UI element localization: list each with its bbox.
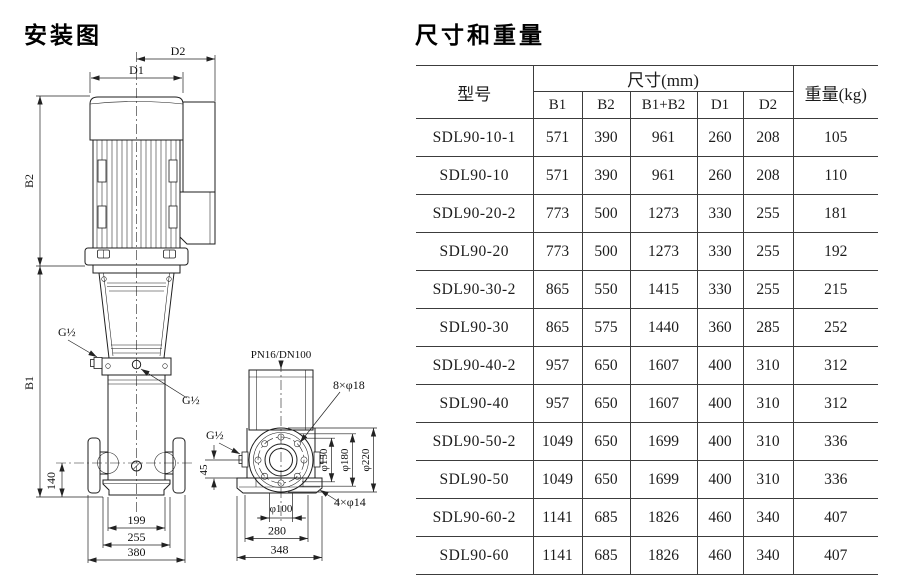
value-cell: 310 (743, 385, 793, 423)
label-bolt-holes: 8×φ18 (333, 378, 365, 392)
value-cell: 336 (793, 423, 878, 461)
value-cell: 330 (697, 195, 743, 233)
value-cell: 1699 (630, 423, 697, 461)
value-cell: 1049 (533, 461, 582, 499)
value-cell: 208 (743, 157, 793, 195)
label-348: 348 (271, 543, 289, 557)
model-cell: SDL90-20-2 (416, 195, 533, 233)
value-cell: 340 (743, 499, 793, 537)
value-cell: 650 (582, 347, 630, 385)
value-cell: 255 (743, 233, 793, 271)
label-199: 199 (128, 513, 146, 527)
value-cell: 330 (697, 271, 743, 309)
table-row: SDL90-5010496501699400310336 (416, 461, 878, 499)
table-row: SDL90-60-211416851826460340407 (416, 499, 878, 537)
front-dimensions: B2 B1 140 D1 D2 199 255 380 G½ G½ (22, 44, 215, 563)
label-d1: D1 (129, 63, 144, 77)
value-cell: 571 (533, 157, 582, 195)
value-cell: 957 (533, 385, 582, 423)
value-cell: 336 (793, 461, 878, 499)
value-cell: 685 (582, 499, 630, 537)
spec-table-body: SDL90-10-1571390961260208105SDL90-105713… (416, 119, 878, 575)
value-cell: 252 (793, 309, 878, 347)
value-cell: 650 (582, 423, 630, 461)
value-cell: 255 (743, 271, 793, 309)
value-cell: 310 (743, 423, 793, 461)
label-g-half-lower: G½ (182, 393, 200, 407)
table-row: SDL90-308655751440360285252 (416, 309, 878, 347)
value-cell: 181 (793, 195, 878, 233)
value-cell: 961 (630, 119, 697, 157)
table-row: SDL90-6011416851826460340407 (416, 537, 878, 575)
head-bolt-right (163, 364, 168, 369)
value-cell: 208 (743, 119, 793, 157)
value-cell: 400 (697, 347, 743, 385)
side-view: PN16/DN100 8×φ18 G½ 45 φ150 φ180 φ220 4×… (198, 349, 377, 561)
model-cell: SDL90-10-1 (416, 119, 533, 157)
label-d2: D2 (171, 44, 186, 58)
value-cell: 650 (582, 461, 630, 499)
value-cell: 500 (582, 233, 630, 271)
value-cell: 1826 (630, 537, 697, 575)
label-dia150: φ150 (318, 448, 330, 471)
model-cell: SDL90-40-2 (416, 347, 533, 385)
model-cell: SDL90-10 (416, 157, 533, 195)
value-cell: 500 (582, 195, 630, 233)
header-weight: 重量(kg) (793, 66, 878, 119)
value-cell: 110 (793, 157, 878, 195)
value-cell: 215 (793, 271, 878, 309)
dimensions-weight-title: 尺寸和重量 (415, 16, 545, 50)
table-row: SDL90-10-1571390961260208105 (416, 119, 878, 157)
value-cell: 400 (697, 385, 743, 423)
side-dimensions: PN16/DN100 8×φ18 G½ 45 φ150 φ180 φ220 4×… (198, 349, 377, 561)
head-bolt-left (106, 364, 111, 369)
value-cell: 773 (533, 233, 582, 271)
label-dia100: φ100 (270, 503, 293, 515)
model-cell: SDL90-40 (416, 385, 533, 423)
value-cell: 1699 (630, 461, 697, 499)
value-cell: 390 (582, 157, 630, 195)
value-cell: 1415 (630, 271, 697, 309)
label-flange-spec: PN16/DN100 (251, 349, 312, 361)
label-dia180: φ180 (339, 448, 351, 471)
value-cell: 105 (793, 119, 878, 157)
header-d2: D2 (743, 92, 793, 119)
value-cell: 1273 (630, 195, 697, 233)
table-row: SDL90-30-28655501415330255215 (416, 271, 878, 309)
value-cell: 285 (743, 309, 793, 347)
model-cell: SDL90-50-2 (416, 423, 533, 461)
value-cell: 460 (697, 537, 743, 575)
value-cell: 407 (793, 499, 878, 537)
motor-tie-rod-slots (98, 160, 177, 228)
value-cell: 865 (533, 271, 582, 309)
value-cell: 312 (793, 385, 878, 423)
model-cell: SDL90-50 (416, 461, 533, 499)
value-cell: 1273 (630, 233, 697, 271)
motor-conduit (183, 102, 215, 192)
value-cell: 685 (582, 537, 630, 575)
value-cell: 310 (743, 347, 793, 385)
value-cell: 575 (582, 309, 630, 347)
discharge-flange (173, 438, 185, 493)
value-cell: 340 (743, 537, 793, 575)
label-140: 140 (44, 472, 58, 490)
value-cell: 957 (533, 347, 582, 385)
value-cell: 407 (793, 537, 878, 575)
table-row: SDL90-20-27735001273330255181 (416, 195, 878, 233)
label-b1: B1 (22, 376, 36, 390)
model-cell: SDL90-30 (416, 309, 533, 347)
value-cell: 550 (582, 271, 630, 309)
label-g-half-side: G½ (206, 428, 224, 442)
header-d1: D1 (697, 92, 743, 119)
model-cell: SDL90-60 (416, 537, 533, 575)
value-cell: 260 (697, 119, 743, 157)
value-cell: 1440 (630, 309, 697, 347)
table-row: SDL90-50-210496501699400310336 (416, 423, 878, 461)
table-row: SDL90-10571390961260208110 (416, 157, 878, 195)
header-model: 型号 (416, 66, 533, 119)
label-255: 255 (128, 530, 146, 544)
value-cell: 400 (697, 423, 743, 461)
value-cell: 360 (697, 309, 743, 347)
table-row: SDL90-409576501607400310312 (416, 385, 878, 423)
label-g-half-upper: G½ (58, 325, 76, 339)
value-cell: 1049 (533, 423, 582, 461)
header-b1b2: B1+B2 (630, 92, 697, 119)
label-dia220: φ220 (360, 448, 372, 471)
value-cell: 390 (582, 119, 630, 157)
header-b1: B1 (533, 92, 582, 119)
value-cell: 330 (697, 233, 743, 271)
table-row: SDL90-207735001273330255192 (416, 233, 878, 271)
lantern-housing (99, 273, 174, 358)
model-cell: SDL90-20 (416, 233, 533, 271)
value-cell: 310 (743, 461, 793, 499)
value-cell: 460 (697, 499, 743, 537)
fill-plug (91, 358, 103, 369)
value-cell: 773 (533, 195, 582, 233)
model-cell: SDL90-60-2 (416, 499, 533, 537)
value-cell: 961 (630, 157, 697, 195)
value-cell: 400 (697, 461, 743, 499)
header-size-group: 尺寸(mm) (533, 66, 793, 92)
label-45: 45 (198, 464, 210, 476)
suction-flange (88, 438, 100, 493)
value-cell: 571 (533, 119, 582, 157)
value-cell: 260 (697, 157, 743, 195)
value-cell: 1607 (630, 385, 697, 423)
value-cell: 1826 (630, 499, 697, 537)
model-cell: SDL90-30-2 (416, 271, 533, 309)
value-cell: 1607 (630, 347, 697, 385)
value-cell: 865 (533, 309, 582, 347)
label-280: 280 (268, 524, 286, 538)
value-cell: 255 (743, 195, 793, 233)
value-cell: 1141 (533, 499, 582, 537)
value-cell: 650 (582, 385, 630, 423)
table-row: SDL90-40-29576501607400310312 (416, 347, 878, 385)
value-cell: 192 (793, 233, 878, 271)
dimensions-weight-table: 型号 尺寸(mm) 重量(kg) B1 B2 B1+B2 D1 D2 SDL90… (416, 65, 878, 575)
front-view: B2 B1 140 D1 D2 199 255 380 G½ G½ (22, 44, 215, 563)
label-b2: B2 (22, 174, 36, 188)
header-b2: B2 (582, 92, 630, 119)
label-380: 380 (128, 545, 146, 559)
pump-installation-drawing: B2 B1 140 D1 D2 199 255 380 G½ G½ (0, 0, 410, 580)
value-cell: 312 (793, 347, 878, 385)
value-cell: 1141 (533, 537, 582, 575)
